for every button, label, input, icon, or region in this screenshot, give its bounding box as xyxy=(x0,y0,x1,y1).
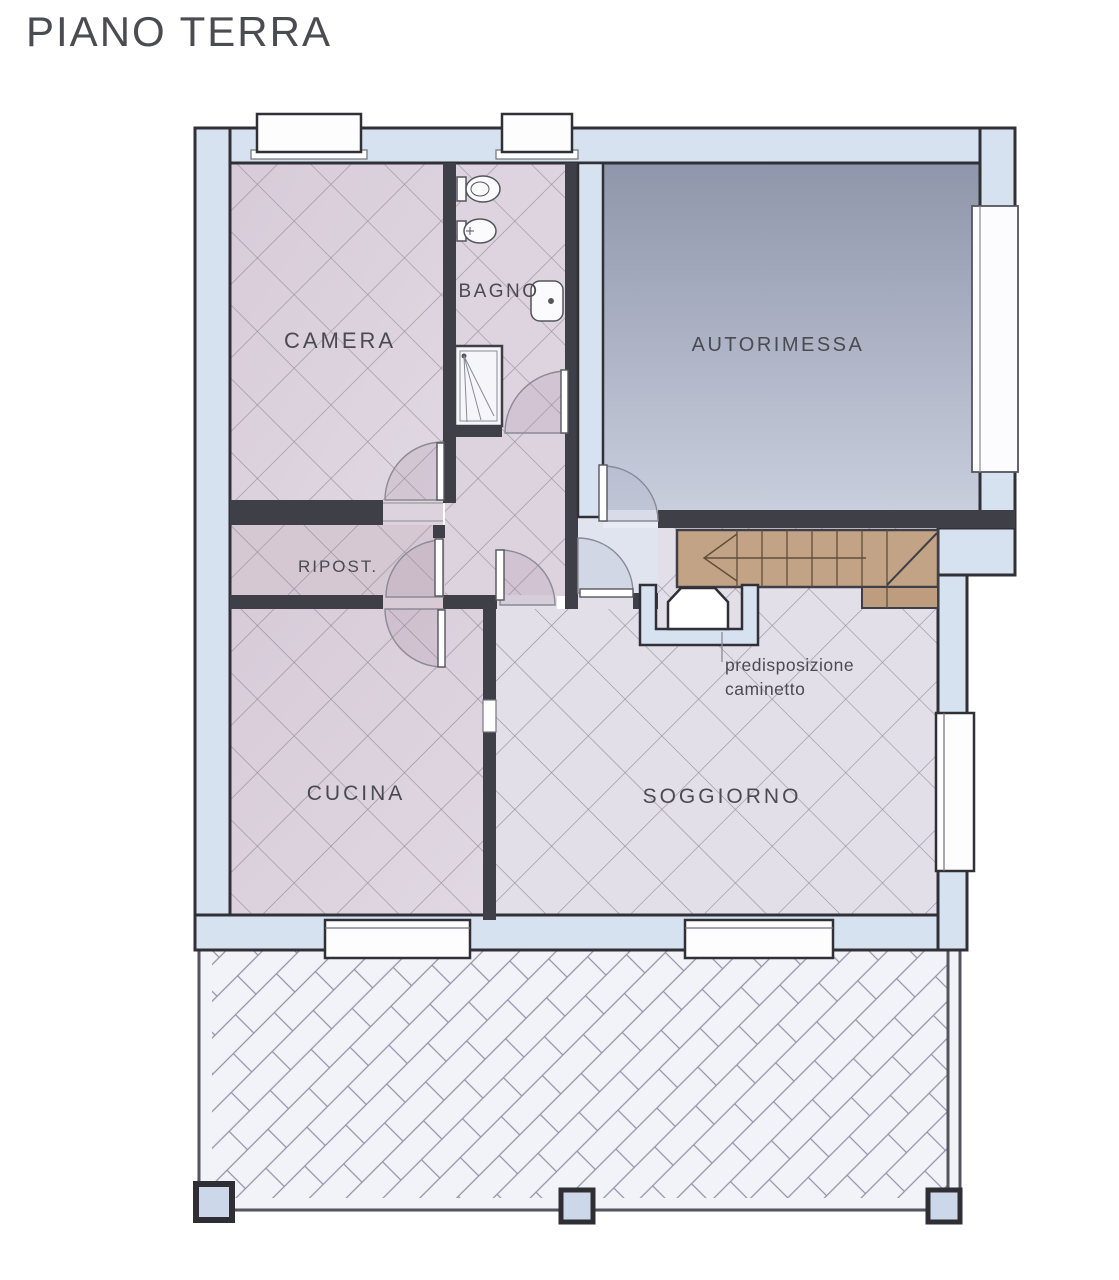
shower-fixture xyxy=(455,346,502,426)
terrace-brick-paving xyxy=(212,950,948,1198)
toilet-fixture xyxy=(457,176,500,202)
fireplace-flue xyxy=(668,588,728,629)
garage-pedestrian-door-leaf xyxy=(599,465,607,521)
wall-right-jog xyxy=(938,528,1015,575)
autorimessa-label: AUTORIMESSA xyxy=(692,334,865,356)
ripostiglio-label: RIPOST. xyxy=(298,557,378,576)
soggiorno-door-leaf xyxy=(496,550,504,600)
bagno-window xyxy=(502,114,572,152)
fireplace-note-line1: predisposizione xyxy=(725,655,854,675)
wall-cucina-soggiorno xyxy=(483,609,496,920)
bidet-fixture xyxy=(457,219,496,243)
soggiorno-window-bottom xyxy=(685,920,833,958)
floor-plan-drawing: CAMERA BAGNO AUTORIMESSA RIPOST. CUCINA … xyxy=(0,0,1119,1280)
terrace-pillar-left xyxy=(196,1184,232,1220)
wall-garage-left xyxy=(578,163,603,517)
wall-garage-bottom xyxy=(658,510,1015,528)
floor-plan-page: PIANO TERRA xyxy=(0,0,1119,1280)
camera-door-leaf xyxy=(437,443,444,500)
wall-bottom xyxy=(195,915,967,950)
bagno-label: BAGNO xyxy=(458,281,539,302)
camera-label: CAMERA xyxy=(284,328,396,353)
wall-left xyxy=(195,128,230,950)
terrace-pillar-middle xyxy=(561,1190,593,1222)
stairs-lower-step xyxy=(862,587,938,608)
soggiorno-window-right xyxy=(936,713,974,871)
cucina-door-leaf xyxy=(438,610,445,667)
camera-window xyxy=(257,114,361,152)
cucina-soggiorno-pass-opening xyxy=(483,700,496,732)
bagno-door-leaf xyxy=(561,370,568,433)
vestibule-door-leaf xyxy=(580,589,633,597)
ripostiglio-door-leaf xyxy=(435,539,443,596)
terrace-pillar-right xyxy=(928,1190,960,1222)
cucina-label: CUCINA xyxy=(307,782,406,805)
wall-camera-bagno xyxy=(443,163,456,503)
soggiorno-label: SOGGIORNO xyxy=(643,785,802,808)
terrace xyxy=(196,950,960,1222)
fireplace-note-line2: caminetto xyxy=(725,679,805,699)
cucina-window xyxy=(325,920,470,958)
garage-vehicle-door xyxy=(972,206,1018,472)
